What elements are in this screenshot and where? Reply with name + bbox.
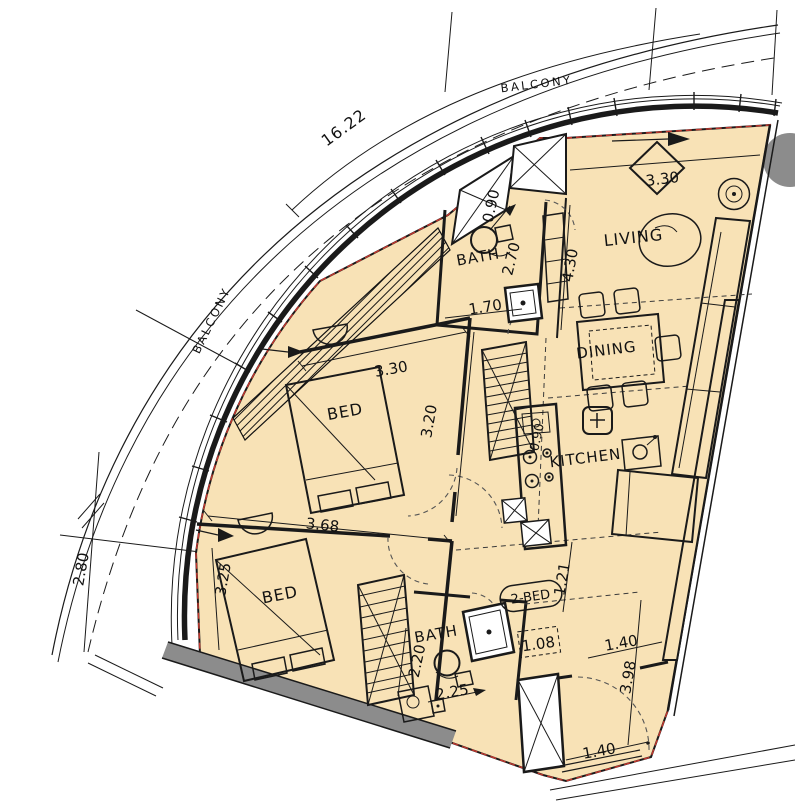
balcony-label-left: BALCONY: [189, 285, 233, 356]
dim-break-symbol: [78, 494, 104, 528]
shaft-x-bottom: [518, 674, 564, 772]
balcony-width-dim-line: [84, 452, 99, 652]
floor-plan-drawing: 2.80 BALCONY BALCONY 16.22: [0, 0, 795, 810]
edge-line-top-right: [772, 10, 777, 95]
dim-arc-length: 16.22: [318, 105, 370, 150]
shaft-x-entry: [510, 134, 566, 194]
balcony-label-top: BALCONY: [500, 73, 574, 96]
dim-bed2-width: 3.68: [305, 514, 340, 535]
balcony-radial-1: [136, 310, 240, 366]
balcony-divider-top: [445, 12, 452, 92]
floor-plan-page: 2.80 BALCONY BALCONY 16.22: [0, 0, 795, 810]
